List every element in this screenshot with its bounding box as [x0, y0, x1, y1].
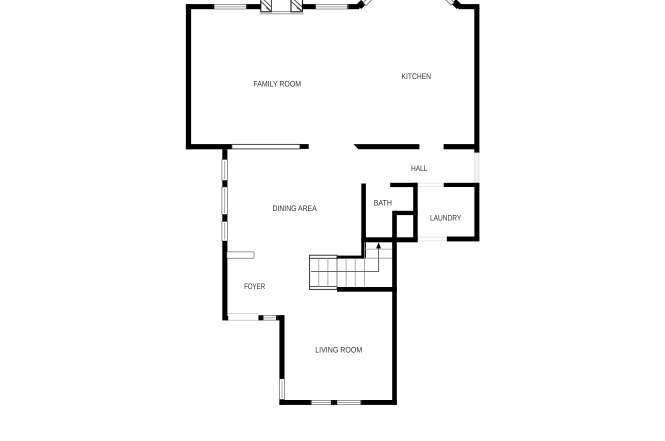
- svg-text:KITCHEN: KITCHEN: [402, 72, 432, 81]
- svg-text:FAMILY ROOM: FAMILY ROOM: [253, 80, 301, 89]
- svg-text:DINING AREA: DINING AREA: [273, 204, 318, 213]
- svg-text:BATH: BATH: [374, 199, 392, 208]
- svg-text:LAUNDRY: LAUNDRY: [430, 213, 462, 222]
- svg-text:LIVING ROOM: LIVING ROOM: [315, 346, 362, 355]
- svg-text:FOYER: FOYER: [244, 282, 265, 291]
- svg-text:HALL: HALL: [411, 164, 428, 173]
